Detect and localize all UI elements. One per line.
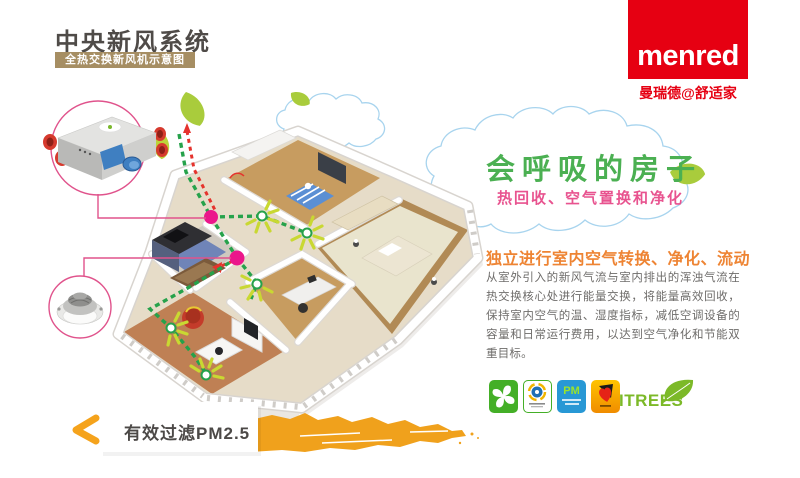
heat-exchanger-unit [43, 117, 168, 180]
certification-badges: PM [489, 380, 620, 413]
itrees-logo: ITREES [619, 391, 683, 411]
green-fan-cert-badge-icon [489, 380, 518, 413]
exhaust-arrowhead-icon [183, 123, 191, 133]
heart-cert-badge-icon [591, 380, 620, 413]
brand-logo: menred [628, 0, 748, 79]
pm-filter-label: 有效过滤PM2.5 [124, 419, 250, 444]
description-heading: 独立进行室内空气转换、净化、流动 [486, 245, 750, 269]
cn-cert-badge-icon [523, 380, 552, 413]
duct-node [204, 210, 218, 224]
itrees-leaf-icon [660, 376, 698, 404]
page-subtitle-badge: 全热交换新风机示意图 [55, 52, 195, 68]
chevron-icon [76, 418, 96, 441]
hero-title: 会呼吸的房子 [486, 146, 702, 188]
brand-tagline: 曼瑞德@舒适家 [628, 83, 748, 103]
pm-badge-label: PM [557, 385, 586, 397]
pm25-cert-badge-icon: PM [557, 380, 586, 413]
duct-node [230, 251, 245, 266]
hero-subtitle: 热回收、空气置换和净化 [497, 187, 684, 208]
brush-stroke [250, 413, 479, 452]
brand-logo-text: menred [637, 42, 739, 71]
description-body: 从室外引入的新风气流与室内排出的浑浊气流在热交换核心处进行能量交换，将能量高效回… [486, 269, 740, 364]
